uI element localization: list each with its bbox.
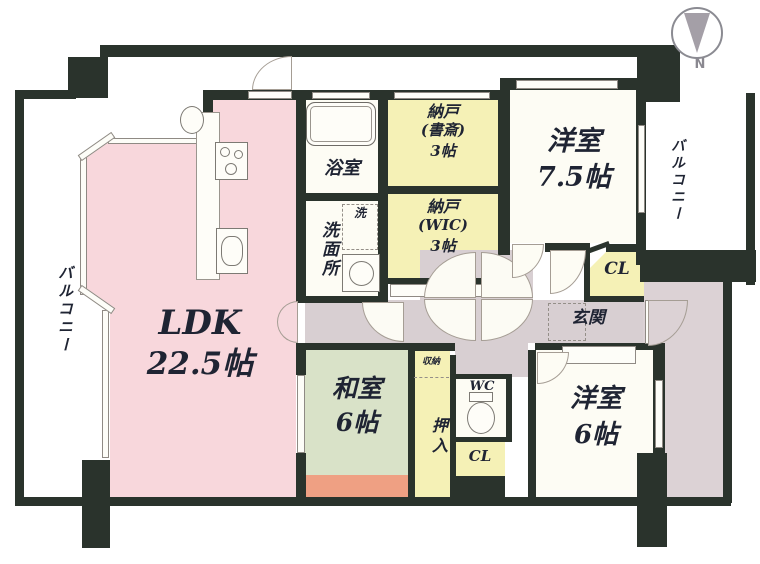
window <box>394 92 490 99</box>
room-ldk <box>83 95 296 497</box>
toilet-icon <box>467 402 495 434</box>
wall <box>498 90 510 255</box>
room-label-nando-wic: 納戸 <box>390 199 496 216</box>
washroom-name: 洗面所 <box>318 221 338 278</box>
shuno-divider <box>414 377 449 378</box>
compass-n-label: N <box>688 58 712 72</box>
wall <box>15 90 24 506</box>
wall <box>606 244 644 252</box>
shoe-cabinet <box>562 346 636 364</box>
wall <box>385 186 500 194</box>
nando-wic-l2: (WIC) <box>418 216 468 234</box>
balcony-right-label: バルコニー <box>654 116 684 244</box>
shuno-name: 収納 <box>422 357 440 367</box>
room-label-western75-size: 7.5帖 <box>510 164 638 192</box>
shuno-label: 収納 <box>412 358 450 367</box>
burner-icon <box>225 163 237 175</box>
genkan-name: 玄関 <box>571 308 605 328</box>
bath-name: 浴室 <box>324 158 360 179</box>
compass <box>671 7 723 59</box>
washbasin <box>342 254 380 292</box>
balcony-left-label: バルコニー <box>42 246 72 374</box>
sliding-door <box>297 375 305 453</box>
wall <box>296 343 306 375</box>
window <box>516 80 618 89</box>
wall <box>528 350 536 497</box>
room-label-genkan: 玄関 <box>556 310 620 328</box>
western75-size: 7.5帖 <box>537 162 611 193</box>
north-arrow-icon <box>684 13 710 53</box>
door-arc <box>252 56 292 90</box>
wall <box>408 343 455 351</box>
door-arc <box>512 244 544 278</box>
kitchen-sink <box>216 228 248 274</box>
western6-size: 6帖 <box>574 420 618 450</box>
washitsu-size: 6帖 <box>336 408 378 437</box>
western75-name: 洋室 <box>547 126 601 157</box>
closet-entrance-label: CL <box>594 261 640 279</box>
wall <box>296 453 306 503</box>
oshiire-label: 押入 <box>418 404 446 470</box>
room-label-nando-study3: 3帖 <box>392 144 494 160</box>
room-label-western6-size: 6帖 <box>560 422 632 449</box>
wall <box>15 90 76 99</box>
wall <box>15 497 731 506</box>
room-label-western6: 洋室 <box>547 386 645 413</box>
ldk-size: 22.5帖 <box>147 346 254 382</box>
wall <box>408 350 415 497</box>
washer-name: 洗 <box>354 206 366 220</box>
bathtub <box>306 102 376 146</box>
room-label-nando-study2: (書斎) <box>390 123 496 139</box>
wall <box>506 374 512 442</box>
wc-name: WC <box>470 379 495 394</box>
nando-wic-l1: 納戸 <box>427 197 459 216</box>
room-label-ldk: LDK <box>130 306 270 342</box>
door-opening <box>248 91 292 99</box>
entrance-porch-lower <box>665 345 723 497</box>
window <box>108 138 206 144</box>
balcony-sink <box>180 106 204 134</box>
window <box>312 92 370 99</box>
western6-name: 洋室 <box>570 384 622 414</box>
room-label-nando-wic3: 3帖 <box>392 239 494 255</box>
sink-basin <box>221 236 243 266</box>
room-label-washitsu-size: 6帖 <box>321 410 393 436</box>
washer-label: 洗 <box>348 207 372 220</box>
basin-bowl <box>349 261 374 286</box>
balcony-right-text: バルコニー <box>669 138 685 223</box>
room-label-ldk-size: 22.5帖 <box>118 348 282 381</box>
wall <box>584 296 644 302</box>
nando-study-l2: (書斎) <box>421 121 465 139</box>
window <box>80 155 87 295</box>
wall <box>723 278 732 503</box>
nando-study-l3: 3帖 <box>430 142 455 160</box>
burner-icon <box>234 150 243 159</box>
wall <box>296 343 413 350</box>
wall <box>100 45 637 57</box>
room-label-washitsu: 和室 <box>313 376 401 402</box>
compass-n-text: N <box>695 57 706 72</box>
wc-label: WC <box>461 380 503 394</box>
stove <box>215 142 248 180</box>
wall <box>640 250 756 282</box>
window <box>102 310 109 458</box>
room-label-western75: 洋室 <box>517 128 631 156</box>
oshiire-name: 押入 <box>429 417 448 457</box>
burner-icon <box>220 147 230 157</box>
nando-wic-l3: 3帖 <box>430 237 455 255</box>
window <box>655 380 663 448</box>
washitsu-engawa-strip <box>305 475 408 497</box>
nando-study-l1: 納戸 <box>427 102 459 121</box>
pillar <box>82 460 110 548</box>
room-label-nando-wic2: (WIC) <box>390 218 496 234</box>
floor-plan: LDK 22.5帖 和室 6帖 洋室 7.5帖 洋室 6帖 納戸 (書斎) 3帖… <box>0 0 760 564</box>
closet-south-label: CL <box>458 449 502 465</box>
door-arc <box>550 250 586 294</box>
window <box>638 125 645 213</box>
balcony-left-text: バルコニー <box>56 265 74 355</box>
cl-south-name: CL <box>469 447 492 465</box>
ldk-name: LDK <box>159 303 242 343</box>
room-label-bath: 浴室 <box>308 160 376 179</box>
wall <box>296 193 384 201</box>
room-label-washroom: 洗面所 <box>308 206 336 292</box>
room-label-nando-study: 納戸 <box>390 104 496 121</box>
cl-entrance-name: CL <box>604 259 629 279</box>
wall <box>450 437 510 442</box>
corridor-pocket <box>455 343 528 377</box>
washitsu-name: 和室 <box>332 374 382 403</box>
wall <box>453 476 505 497</box>
